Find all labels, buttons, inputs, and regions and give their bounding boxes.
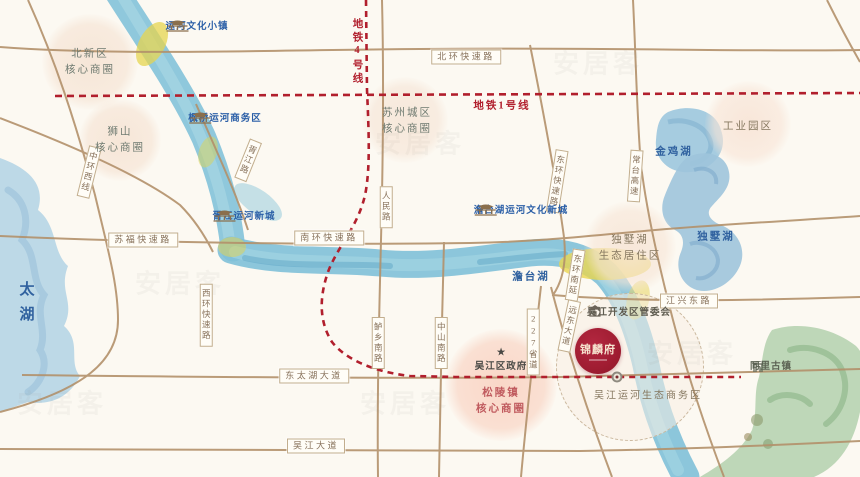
pagoda-icon xyxy=(188,110,212,125)
road-beihuan-path xyxy=(0,47,860,52)
landmark-label: 吴江区政府 xyxy=(475,358,528,372)
government-star-icon: ★ xyxy=(496,346,506,359)
landmark-yunhe-town: 运河文化小镇 xyxy=(165,18,228,32)
road-label-beihuan: 北环快速路 xyxy=(431,50,501,65)
taihu-label: 太湖 xyxy=(16,281,37,331)
tantai-lake-label: 澹台湖 xyxy=(512,269,550,284)
road-label-zhongshan: 中山南路 xyxy=(435,317,448,369)
landmark-government: 吴江区政府 xyxy=(475,358,528,372)
road-label-s227: 227省道 xyxy=(527,309,540,376)
district-label-wujiang-eco: 吴江运河生态商务区 xyxy=(594,389,702,404)
jinji-lake-label: 金鸡湖 xyxy=(655,144,693,159)
road-label-renmin: 人民路 xyxy=(380,186,393,228)
project-logo-rule xyxy=(589,359,607,361)
district-label-suzhou-city: 苏州城区 核心商圈 xyxy=(382,105,432,137)
landmark-xujiang-newtown: 胥江运河新城 xyxy=(212,208,275,222)
road-label-dongtaihu: 东太湖大道 xyxy=(279,369,349,384)
district-label-shishan: 狮山 核心商圈 xyxy=(95,124,145,156)
metro-line4-label: 地铁4号线 xyxy=(350,18,365,86)
road-label-nanhuan: 南环快速路 xyxy=(294,231,364,246)
landmark-kaifaqu: 吴江开发区管委会 xyxy=(587,304,671,318)
gate-icon xyxy=(750,358,766,374)
road-label-sufu: 苏福快速路 xyxy=(108,233,178,248)
project-logo-marker[interactable]: 锦麟府 xyxy=(575,328,621,374)
metro-line1-label: 地铁1号线 xyxy=(473,98,530,113)
road-renmin-luxiang-path xyxy=(378,0,383,477)
road-label-wujiang: 吴江大道 xyxy=(287,439,345,454)
road-label-xihuan: 西环快速路 xyxy=(200,284,213,347)
landmark-fengqiao: 枫桥运河商务区 xyxy=(188,110,262,124)
metro-line1-path xyxy=(55,93,860,96)
dushu-lake-label: 独墅湖 xyxy=(697,229,735,244)
pagoda-icon xyxy=(165,18,189,33)
project-logo-name: 锦麟府 xyxy=(580,341,616,357)
district-label-songling: 松陵镇 核心商圈 xyxy=(476,385,526,417)
location-map: 安居客 安居客 安居客 安居客 安居客 安居客 太湖 金鸡湖 独墅湖 澹台湖 地… xyxy=(0,0,860,477)
metro-station-icon xyxy=(612,372,623,383)
landmark-tongli: 同里古镇 xyxy=(750,358,792,372)
landmark-tantai-newtown: 澹台湖运河文化新城 xyxy=(474,202,569,216)
district-label-beixin: 北新区 核心商圈 xyxy=(65,46,115,78)
building-icon xyxy=(587,304,603,317)
road-label-luxiang: 鲈乡南路 xyxy=(372,317,385,369)
pagoda-icon xyxy=(212,208,236,223)
district-label-dushu-eco: 独墅湖 生态居住区 xyxy=(599,232,662,264)
road-ne-corner-path xyxy=(827,0,860,62)
district-label-industrial-park: 工业园区 xyxy=(723,119,773,135)
road-wujiang-path xyxy=(0,441,860,451)
pagoda-icon xyxy=(474,202,498,217)
